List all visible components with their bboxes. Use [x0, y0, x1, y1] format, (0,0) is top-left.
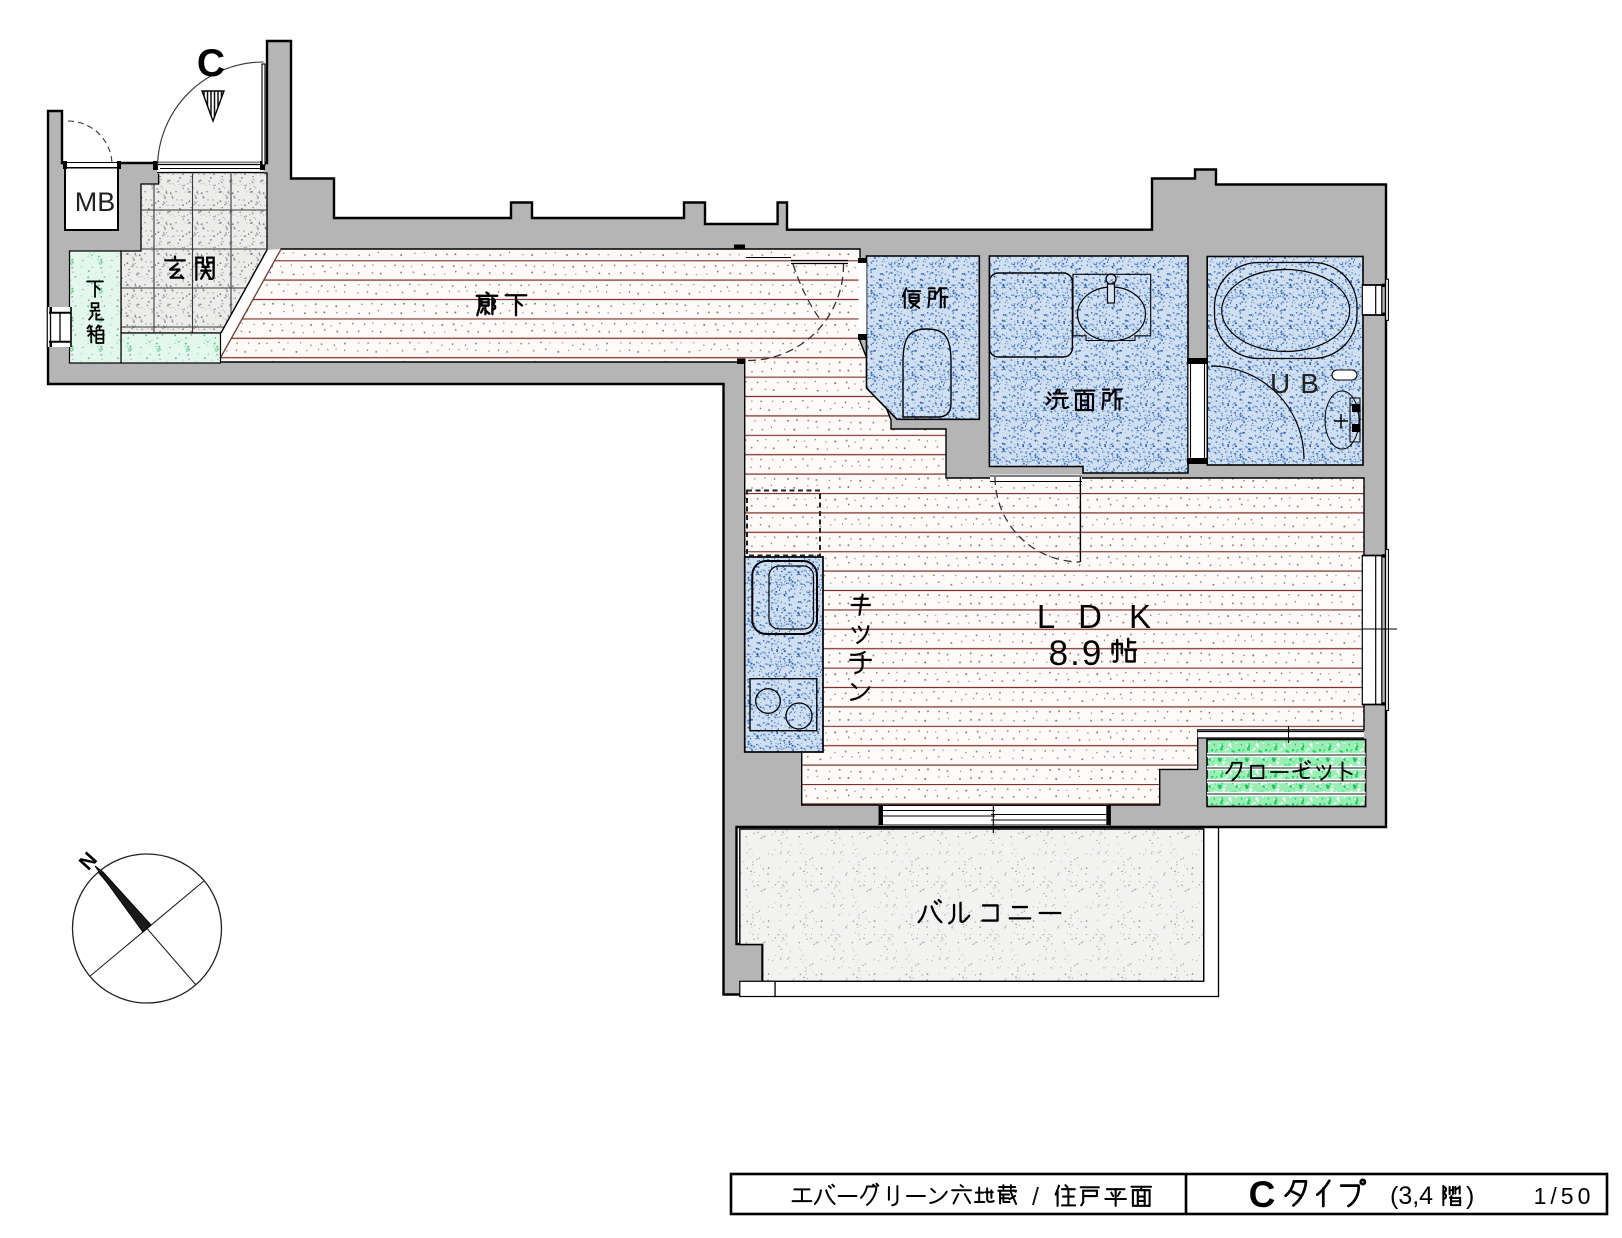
- svg-text:K: K: [1129, 598, 1151, 635]
- svg-text:8.9: 8.9: [1049, 634, 1104, 673]
- svg-text:L: L: [1037, 598, 1055, 635]
- svg-text:UB: UB: [1270, 368, 1329, 399]
- svg-text:/: /: [1032, 1183, 1039, 1211]
- svg-text:MB: MB: [75, 187, 116, 217]
- svg-text:D: D: [1078, 598, 1102, 635]
- svg-text:C: C: [197, 42, 225, 85]
- svg-text:1/50: 1/50: [1534, 1183, 1595, 1209]
- svg-text:(3,4: (3,4: [1390, 1182, 1433, 1210]
- svg-text:): ): [1466, 1182, 1474, 1210]
- svg-text:C: C: [1249, 1174, 1276, 1215]
